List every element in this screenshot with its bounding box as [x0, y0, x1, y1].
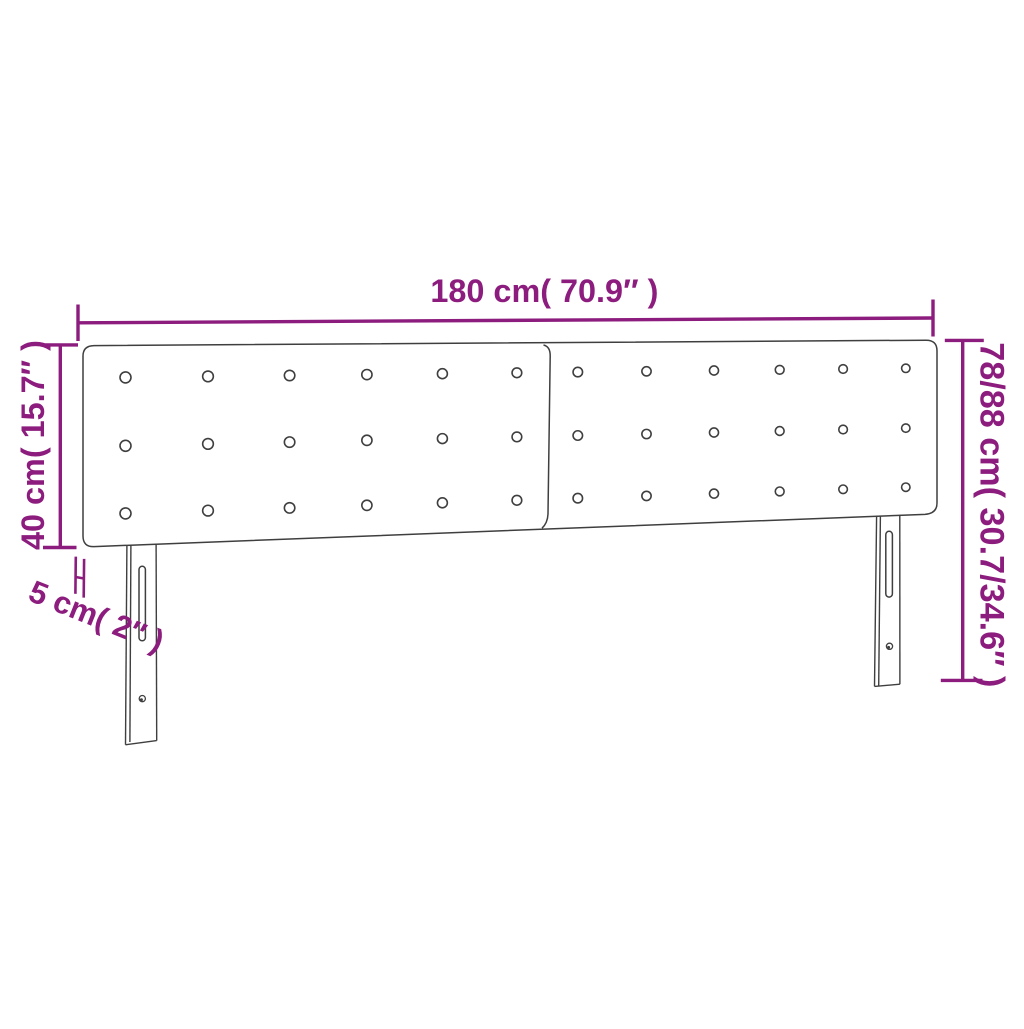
svg-text:40 cm( 15.7″ ): 40 cm( 15.7″ )	[15, 340, 51, 550]
svg-text:180 cm( 70.9″ ): 180 cm( 70.9″ )	[430, 273, 658, 309]
svg-text:78/88 cm( 30.7/34.6″ ): 78/88 cm( 30.7/34.6″ )	[972, 342, 1010, 687]
